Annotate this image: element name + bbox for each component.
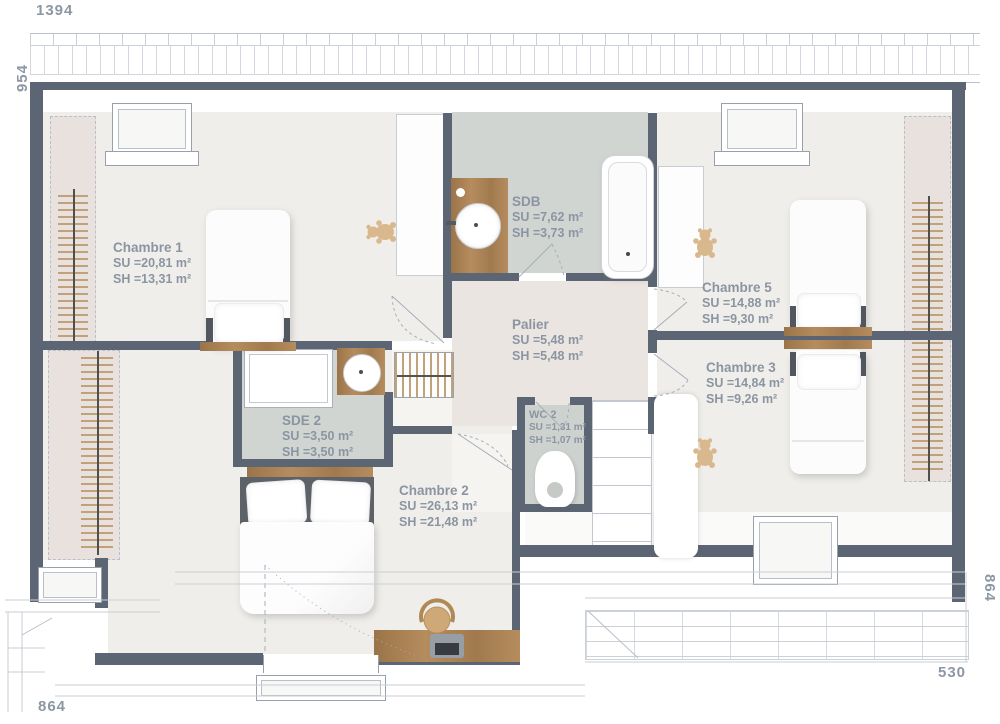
- room-label-chambre5: Chambre 5 SU =14,88 m² SH =9,30 m²: [702, 280, 780, 327]
- wall-palier-bottom: [392, 426, 452, 434]
- pillow: [246, 479, 308, 527]
- bed-headboard: [784, 340, 872, 349]
- room-label-chambre1: Chambre 1 SU =20,81 m² SH =13,31 m²: [113, 240, 191, 287]
- window-chambre1: [112, 103, 192, 155]
- dimension-left: 954: [14, 64, 31, 92]
- bathtub: [601, 155, 654, 279]
- wall-chambre2-bottom-left: [95, 653, 263, 665]
- room-label-chambre2: Chambre 2 SU =26,13 m² SH =21,48 m²: [399, 483, 477, 530]
- dimension-top: 1394: [36, 2, 73, 19]
- wall-sde2-left: [233, 341, 242, 467]
- double-bed-headboard: [247, 467, 373, 477]
- roof-window: [38, 567, 102, 603]
- wall-sdb-bottom-left: [443, 273, 519, 281]
- window-sill: [714, 151, 810, 166]
- floor-bottom-corridor: [525, 512, 952, 545]
- slope-zone-right: [904, 116, 951, 482]
- closet-chambre1: [396, 114, 445, 276]
- room-label-sde2: SDE 2 SU =3,50 m² SH =3,50 m²: [282, 413, 353, 460]
- floor-plan: 1394 954 864 864 530: [0, 0, 1000, 724]
- pillow: [214, 303, 284, 343]
- bed-headboard: [200, 342, 296, 351]
- wall-palier-right-2: [648, 330, 657, 353]
- dimension-bottom-right: 530: [938, 664, 966, 681]
- soap-dish-icon: [456, 188, 465, 197]
- bed-rail: [283, 318, 290, 344]
- radiator: [394, 352, 454, 398]
- stair-railing: [654, 394, 698, 558]
- toilet: [535, 451, 575, 507]
- teddy-bear-icon: [365, 219, 397, 245]
- wall-sde2-bottom: [233, 459, 393, 467]
- window-sill: [105, 151, 199, 166]
- room-label-sdb: SDB SU =7,62 m² SH =3,73 m²: [512, 194, 583, 241]
- window-chambre2-opening: [263, 655, 379, 673]
- wall-outer-right: [952, 82, 965, 602]
- sde2-sink-drain-icon: [359, 370, 363, 374]
- faucet-icon: [446, 221, 456, 225]
- shower-tray: [244, 349, 333, 408]
- teddy-bear-icon: [692, 227, 718, 259]
- wall-outer-left: [30, 82, 43, 602]
- wall-bottom-middle-left: [517, 545, 753, 557]
- pillow: [310, 479, 371, 526]
- pillow: [797, 354, 861, 390]
- bed-fold: [792, 440, 864, 442]
- room-label-wc2: WC 2 SU =1,31 m² SH =1,07 m²: [529, 409, 586, 447]
- bed-rail: [206, 318, 213, 344]
- slope-zone-chambre1: [50, 116, 96, 343]
- sink-drain-icon: [474, 223, 478, 227]
- dimension-right: 864: [981, 574, 998, 602]
- double-bed-duvet: [240, 522, 374, 614]
- teddy-bear-icon: [692, 437, 718, 469]
- bed-fold: [208, 300, 288, 302]
- staircase: [592, 400, 652, 547]
- room-label-palier: Palier SU =5,48 m² SH =5,48 m²: [512, 317, 583, 364]
- dimension-bottom-left: 864: [38, 698, 66, 715]
- window-chambre2-frame: [256, 675, 386, 701]
- brick-elevation: [585, 610, 969, 660]
- sink-sdb: [455, 203, 501, 249]
- desk-chair: [412, 594, 462, 638]
- bed-headboard: [784, 327, 872, 336]
- wall-palier-left: [443, 281, 452, 338]
- room-label-chambre3: Chambre 3 SU =14,84 m² SH =9,26 m²: [706, 360, 784, 407]
- wall-outer-top: [30, 82, 966, 90]
- window-chambre3: [753, 516, 838, 585]
- slope-zone-chambre2: [48, 350, 120, 560]
- roof-tiles-strip: [30, 33, 980, 83]
- window-chambre5: [721, 103, 803, 155]
- wall-bottom-middle-right: [836, 545, 965, 557]
- bed-rail: [790, 352, 796, 376]
- pillow: [797, 293, 861, 329]
